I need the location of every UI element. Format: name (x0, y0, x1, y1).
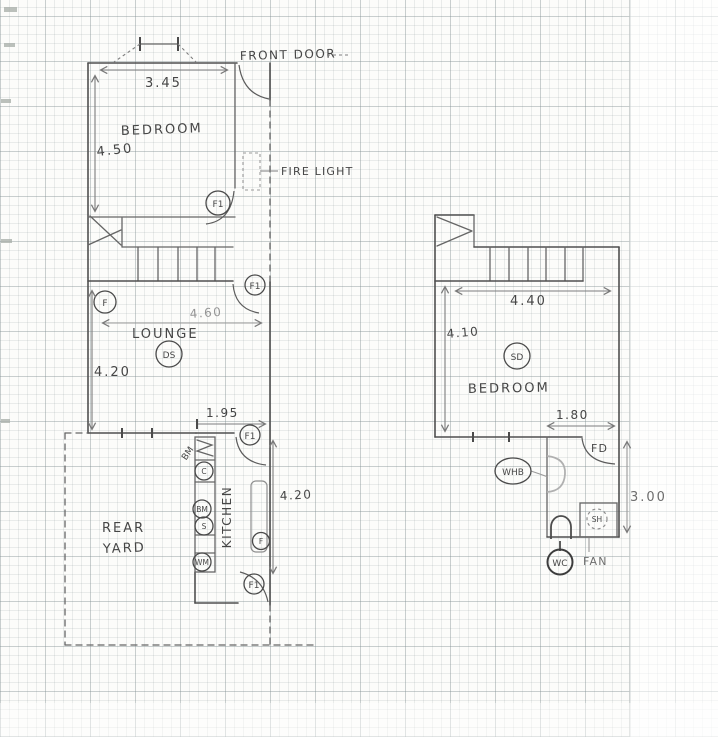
dim-1-80: 1.80 (556, 408, 589, 422)
lounge-label: LOUNGE (132, 327, 199, 342)
winder-lines (437, 217, 472, 246)
ground-floor-stairs (88, 216, 233, 281)
bedroom-window-symbol (114, 37, 196, 62)
dim-1-95: 1.95 (206, 406, 239, 420)
appliance-bm-tag: BM (196, 505, 208, 514)
graph-paper-sheet: FRONT DOOR 3.45 BEDROOM 4.50 FIRE LIGHT … (0, 0, 718, 737)
whb-tag: WHB (502, 468, 524, 478)
lounge-detector-tag: DS (163, 351, 176, 361)
wash-hand-basin (547, 456, 565, 492)
first-floor-stairs (435, 215, 619, 281)
kitchen-label: KITCHEN (220, 486, 234, 549)
first-floor-plan: 4.40 4.10 SD BEDROOM 1.80 FD 3.00 WHB (435, 215, 667, 575)
front-door-swing-arc (239, 65, 269, 99)
kitchen-top-door-tag: F1 (245, 432, 256, 442)
first-bedroom-label: BEDROOM (468, 381, 550, 397)
fire-door-tag: FD (591, 442, 608, 455)
kitchen-bottom-door-tag: F1 (249, 581, 260, 591)
floor-plan-drawing: FRONT DOOR 3.45 BEDROOM 4.50 FIRE LIGHT … (0, 0, 718, 737)
winder-lines (88, 216, 121, 245)
kitchen-window-tag: F (259, 537, 263, 546)
dim-4-20-lounge: 4.20 (94, 365, 131, 380)
shower-tag: SH (592, 515, 602, 524)
ground-floor-plan: FRONT DOOR 3.45 BEDROOM 4.50 FIRE LIGHT … (65, 37, 354, 645)
counter-squiggle (197, 440, 213, 456)
fire-light-label: FIRE LIGHT (281, 165, 354, 178)
counter-note: BM (180, 445, 196, 462)
dim-4-60: 4.60 (189, 305, 223, 321)
dim-4-40: 4.40 (510, 294, 547, 309)
bedroom-door-tag: F1 (213, 200, 224, 210)
first-floor-walls (435, 215, 619, 537)
whb-pointer (531, 471, 548, 477)
toilet (551, 516, 571, 539)
fan-label: FAN (583, 555, 608, 568)
stairs-door-tag: F1 (250, 282, 261, 292)
smoke-detector-tag: SD (511, 353, 524, 363)
dim-3-00: 3.00 (630, 490, 667, 505)
rear-yard-label-1: REAR (102, 521, 145, 536)
lounge-window-tag: F (102, 299, 107, 309)
ground-bedroom-label: BEDROOM (121, 121, 203, 139)
dim-4-10: 4.10 (446, 324, 480, 341)
dim-4-20-kitchen: 4.20 (279, 487, 312, 503)
front-door-label: FRONT DOOR (240, 46, 337, 63)
rear-yard-label-2: YARD (102, 541, 146, 558)
appliance-washer-tag: WM (195, 558, 209, 567)
fire-light-fixture (243, 153, 278, 190)
appliance-cooker-tag: C (201, 467, 206, 476)
rear-yard-boundary (65, 433, 318, 645)
dim-3-45: 3.45 (145, 76, 182, 91)
dim-4-50: 4.50 (96, 141, 134, 160)
appliance-sink-tag: S (202, 522, 207, 531)
wc-tag: WC (552, 559, 567, 569)
scan-artifacts (1, 7, 17, 423)
